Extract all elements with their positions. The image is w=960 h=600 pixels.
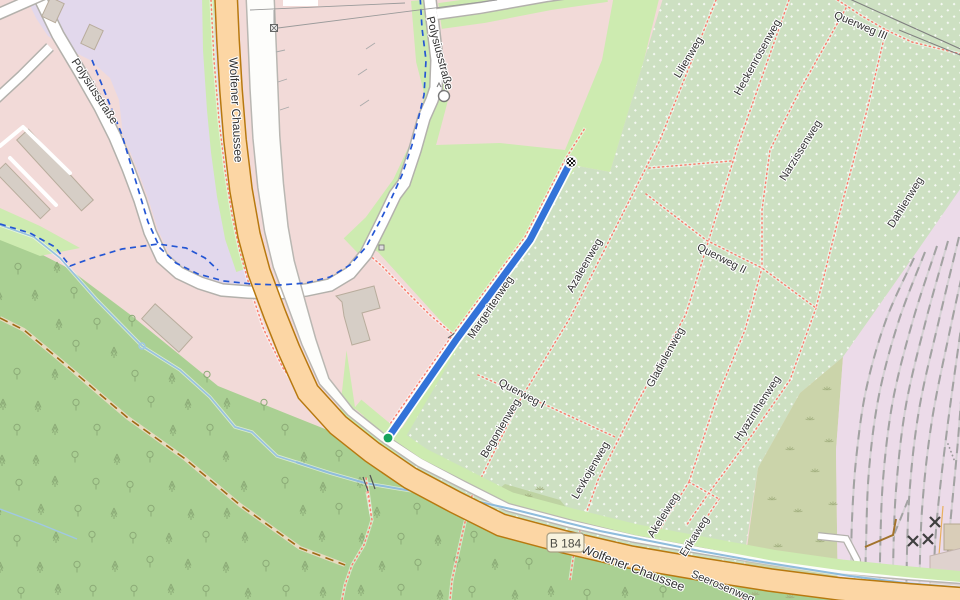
- svg-text:B 184: B 184: [550, 537, 582, 551]
